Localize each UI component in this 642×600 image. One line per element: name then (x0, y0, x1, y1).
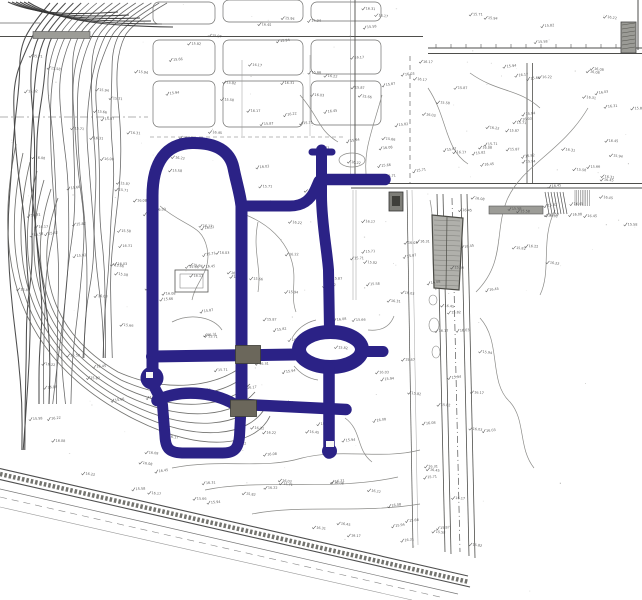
svg-text:15.66: 15.66 (312, 70, 322, 74)
svg-text:15.66: 15.66 (189, 265, 199, 269)
svg-text:15.58: 15.58 (520, 209, 530, 213)
svg-text:15.87: 15.87 (509, 129, 519, 133)
svg-text:15.82: 15.82 (544, 23, 554, 28)
svg-text:15.82: 15.82 (76, 222, 86, 227)
svg-text:15.87: 15.87 (510, 147, 520, 151)
svg-text:16.22: 16.22 (542, 75, 552, 79)
svg-text:15.94: 15.94 (507, 64, 517, 69)
svg-text:15.66: 15.66 (381, 163, 391, 168)
svg-text:16.03: 16.03 (379, 370, 389, 374)
svg-text:16.03: 16.03 (98, 294, 108, 298)
svg-text:15.94: 15.94 (285, 16, 295, 21)
svg-text:16.17: 16.17 (354, 55, 364, 59)
svg-text:15.94: 15.94 (346, 438, 356, 443)
svg-text:16.31: 16.31 (428, 464, 438, 468)
svg-text:16.08: 16.08 (572, 212, 582, 216)
svg-text:15.94: 15.94 (526, 159, 536, 163)
svg-text:16.45: 16.45 (484, 162, 494, 167)
svg-text:16.45: 16.45 (587, 214, 597, 218)
svg-text:16.03: 16.03 (118, 262, 128, 266)
svg-text:16.17: 16.17 (251, 109, 261, 113)
svg-text:16.08: 16.08 (137, 199, 147, 203)
svg-text:15.71: 15.71 (365, 249, 375, 253)
svg-text:16.08: 16.08 (426, 421, 436, 426)
svg-text:16.03: 16.03 (405, 72, 415, 77)
svg-text:15.87: 15.87 (90, 376, 100, 380)
svg-text:15.87: 15.87 (264, 122, 274, 126)
svg-text:15.87: 15.87 (267, 317, 277, 321)
svg-text:16.22: 16.22 (266, 431, 276, 436)
svg-text:16.08: 16.08 (166, 292, 176, 296)
svg-text:15.58: 15.58 (628, 222, 638, 226)
svg-text:16.08: 16.08 (267, 452, 277, 457)
svg-text:16.17: 16.17 (439, 329, 449, 333)
svg-text:16.31: 16.31 (391, 299, 401, 304)
svg-text:15.58: 15.58 (33, 416, 43, 421)
svg-text:16.31: 16.31 (366, 7, 376, 12)
svg-text:16.17: 16.17 (423, 60, 433, 64)
svg-text:16.17: 16.17 (457, 150, 467, 154)
svg-text:16.45: 16.45 (574, 202, 584, 206)
svg-text:15.66: 15.66 (356, 318, 366, 322)
svg-text:16.03: 16.03 (460, 328, 470, 333)
svg-text:16.17: 16.17 (193, 274, 203, 278)
scanned-site-plan-page: 16.0815.9416.2215.8716.4515.7116.0315.58… (0, 0, 642, 600)
svg-text:15.94: 15.94 (211, 500, 221, 505)
svg-text:16.31: 16.31 (131, 131, 141, 136)
svg-text:15.58: 15.58 (70, 353, 80, 357)
svg-text:16.31: 16.31 (94, 136, 104, 140)
svg-text:16.22: 16.22 (289, 252, 299, 256)
svg-text:15.87: 15.87 (458, 86, 468, 90)
svg-text:15.66: 15.66 (124, 323, 134, 328)
svg-text:15.71: 15.71 (263, 184, 273, 188)
svg-text:15.58: 15.58 (172, 169, 182, 174)
svg-text:16.22: 16.22 (529, 244, 539, 248)
svg-text:15.82: 15.82 (28, 89, 38, 93)
svg-text:15.58: 15.58 (370, 282, 380, 286)
paper-background (0, 0, 642, 600)
svg-text:16.03: 16.03 (408, 241, 418, 245)
crosswalk-marker (231, 400, 257, 417)
svg-text:16.08: 16.08 (334, 481, 344, 486)
svg-text:15.71: 15.71 (427, 474, 437, 479)
svg-text:16.17: 16.17 (351, 534, 361, 539)
svg-text:16.17: 16.17 (38, 225, 48, 229)
svg-text:16.45: 16.45 (262, 22, 272, 27)
site-plan-map: 16.0815.9416.2215.8716.4515.7116.0315.58… (0, 0, 642, 600)
svg-text:16.08: 16.08 (47, 385, 57, 390)
svg-text:16.45: 16.45 (96, 364, 106, 369)
svg-text:15.58: 15.58 (121, 229, 131, 233)
svg-text:15.82: 15.82 (451, 310, 461, 314)
svg-text:16.03: 16.03 (486, 428, 496, 433)
svg-text:16.31: 16.31 (420, 239, 430, 243)
svg-text:15.94: 15.94 (488, 16, 498, 21)
svg-text:16.08: 16.08 (56, 439, 66, 443)
svg-text:15.71: 15.71 (33, 54, 43, 59)
svg-text:15.87: 15.87 (634, 106, 642, 110)
svg-text:15.94: 15.94 (288, 290, 298, 294)
svg-text:15.94: 15.94 (311, 19, 321, 23)
svg-text:16.08: 16.08 (482, 146, 492, 150)
svg-text:15.71: 15.71 (354, 256, 364, 260)
svg-text:16.31: 16.31 (207, 332, 217, 337)
svg-text:15.82: 15.82 (441, 403, 451, 408)
svg-text:16.17: 16.17 (247, 385, 257, 390)
svg-text:16.17: 16.17 (455, 496, 465, 501)
svg-text:16.45: 16.45 (309, 430, 319, 435)
svg-text:16.31: 16.31 (285, 81, 295, 85)
svg-text:15.66: 15.66 (163, 297, 173, 302)
svg-text:15.71: 15.71 (74, 126, 84, 131)
svg-text:15.87: 15.87 (405, 358, 415, 362)
svg-text:16.31: 16.31 (122, 244, 132, 248)
svg-text:15.87: 15.87 (440, 525, 450, 530)
crosswalk-marker (236, 346, 261, 364)
svg-text:16.17: 16.17 (252, 63, 262, 68)
svg-text:16.45: 16.45 (206, 264, 216, 268)
svg-text:15.87: 15.87 (355, 86, 365, 91)
svg-text:16.31: 16.31 (206, 480, 216, 485)
svg-text:15.66: 15.66 (591, 165, 601, 169)
svg-text:15.58: 15.58 (538, 39, 548, 44)
svg-text:15.58: 15.58 (135, 487, 145, 492)
svg-text:15.71: 15.71 (218, 368, 228, 372)
svg-text:16.03: 16.03 (314, 93, 324, 98)
svg-text:15.71: 15.71 (303, 121, 313, 126)
svg-text:16.08: 16.08 (104, 157, 114, 161)
svg-text:15.66: 15.66 (173, 57, 183, 62)
svg-text:16.31: 16.31 (608, 104, 618, 109)
svg-text:15.66: 15.66 (454, 266, 464, 270)
svg-text:16.45: 16.45 (609, 139, 619, 143)
svg-text:16.31: 16.31 (254, 426, 264, 431)
svg-text:16.22: 16.22 (328, 74, 338, 79)
svg-text:15.71: 15.71 (473, 12, 483, 16)
svg-text:15.82: 15.82 (191, 42, 201, 47)
svg-text:16.17: 16.17 (474, 390, 484, 395)
svg-text:16.03: 16.03 (220, 251, 230, 255)
svg-text:15.94: 15.94 (384, 376, 394, 381)
svg-text:16.45: 16.45 (462, 208, 472, 212)
svg-text:15.66: 15.66 (197, 497, 207, 501)
svg-text:16.22: 16.22 (268, 486, 278, 490)
svg-text:15.87: 15.87 (105, 117, 115, 121)
